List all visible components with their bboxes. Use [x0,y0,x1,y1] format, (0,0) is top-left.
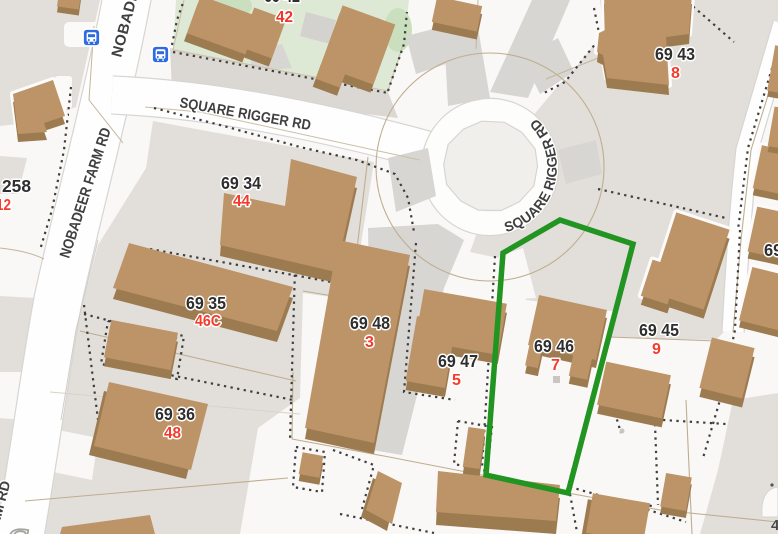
svg-text:12: 12 [0,197,11,214]
svg-text:69 42: 69 42 [264,0,300,6]
svg-text:48: 48 [164,425,181,442]
svg-text:69 4: 69 4 [764,240,778,260]
svg-text:44: 44 [233,193,250,210]
svg-text:S: S [5,519,29,534]
svg-text:69 34: 69 34 [221,173,261,193]
svg-text:5: 5 [452,372,461,389]
svg-text:69 36: 69 36 [155,404,195,424]
svg-text:258: 258 [2,176,31,196]
svg-text:3: 3 [365,334,374,351]
svg-text:69 35: 69 35 [186,293,226,313]
svg-text:7: 7 [551,357,560,374]
svg-text:9: 9 [652,341,661,358]
svg-text:69 46: 69 46 [534,336,574,356]
svg-text:42: 42 [276,9,293,26]
svg-text:8: 8 [671,65,680,82]
svg-text:69 47: 69 47 [438,351,478,371]
svg-text:46C: 46C [195,313,221,330]
svg-text:69 48: 69 48 [350,313,390,333]
svg-text:69 45: 69 45 [639,320,679,340]
svg-text:69 43: 69 43 [655,44,695,64]
svg-text:4: 4 [771,517,778,534]
